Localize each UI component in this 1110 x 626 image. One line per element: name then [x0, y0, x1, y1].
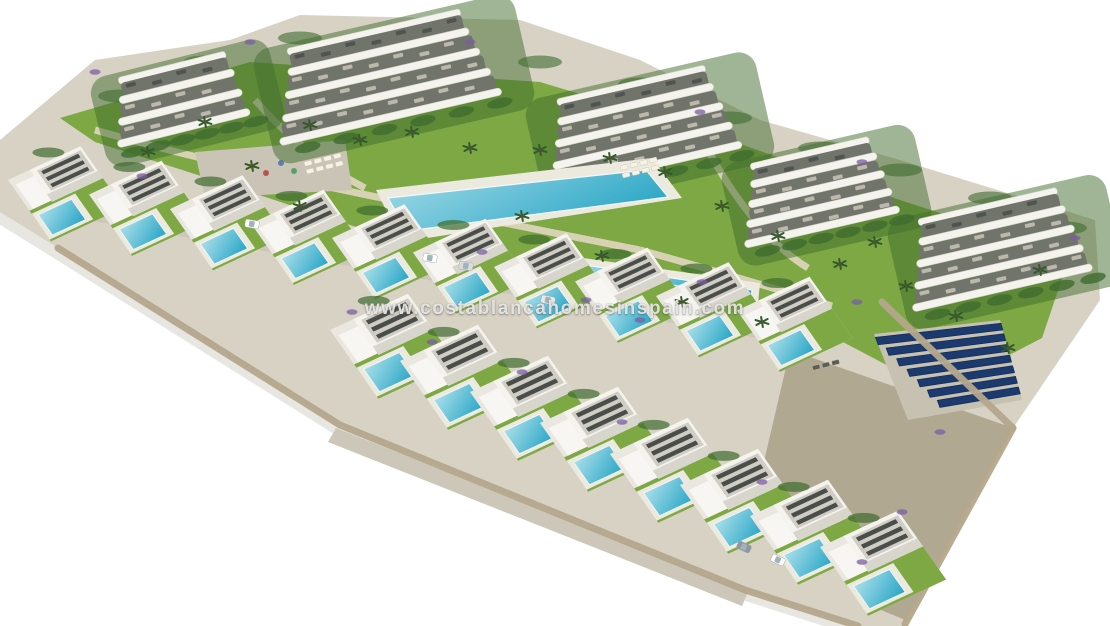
- palm-trunk: [410, 130, 413, 133]
- bougainvillea-patch: [697, 279, 708, 285]
- villa-hedge: [638, 420, 670, 430]
- bougainvillea-patch: [757, 479, 768, 485]
- palm-trunk: [873, 240, 876, 243]
- palm-trunk: [600, 254, 603, 257]
- bougainvillea-patch: [617, 419, 628, 425]
- bougainvillea-patch: [477, 249, 488, 255]
- palm-trunk: [720, 204, 723, 207]
- bougainvillea-patch: [137, 173, 148, 179]
- palm-trunk: [680, 300, 683, 303]
- palm-trunk: [1006, 346, 1009, 349]
- villa-hedge: [194, 177, 226, 187]
- aerial-render: www.costablancahomesinspain.com: [0, 0, 1110, 626]
- palm-trunk: [520, 214, 523, 217]
- palm-trunk: [663, 170, 666, 173]
- palm-trunk: [308, 123, 311, 126]
- bougainvillea-patch: [90, 69, 101, 75]
- villa-hedge: [680, 264, 712, 274]
- villa-hedge: [778, 482, 810, 492]
- villa-hedge: [356, 206, 388, 216]
- bougainvillea-patch: [852, 299, 863, 305]
- villa-hedge: [113, 162, 145, 172]
- bougainvillea-patch: [245, 39, 256, 45]
- palm-trunk: [954, 314, 957, 317]
- palm-trunk: [776, 234, 779, 237]
- bougainvillea-patch: [935, 429, 946, 435]
- playground-equipment: [263, 170, 269, 176]
- villa-hedge: [761, 278, 793, 288]
- villa-hedge: [498, 358, 530, 368]
- render-scene: [0, 0, 1110, 626]
- bougainvillea-patch: [347, 309, 358, 315]
- bougainvillea-patch: [517, 369, 528, 375]
- palm-trunk: [203, 120, 206, 123]
- villa-hedge: [32, 148, 64, 158]
- bougainvillea-patch: [635, 317, 646, 323]
- bougainvillea-patch: [857, 559, 868, 565]
- villa-hedge: [708, 451, 740, 461]
- palm-trunk: [1038, 268, 1041, 271]
- car-windshield: [463, 263, 469, 270]
- villa-hedge: [568, 389, 600, 399]
- palm-trunk: [538, 148, 541, 151]
- bougainvillea-patch: [695, 109, 706, 115]
- villa-hedge: [428, 327, 460, 337]
- bougainvillea-patch: [897, 509, 908, 515]
- villa-hedge: [848, 513, 880, 523]
- car-windshield: [427, 255, 433, 262]
- palm-trunk: [608, 156, 611, 159]
- villa-hedge: [518, 235, 550, 245]
- playground-equipment: [291, 168, 297, 174]
- palm-trunk: [760, 320, 763, 323]
- palm-trunk: [838, 262, 841, 265]
- bougainvillea-patch: [1070, 235, 1081, 241]
- palm-trunk: [298, 204, 301, 207]
- bougainvillea-patch: [857, 159, 868, 165]
- palm-trunk: [904, 284, 907, 287]
- palm-trunk: [358, 138, 361, 141]
- bougainvillea-patch: [427, 339, 438, 345]
- villa-hedge: [358, 296, 390, 306]
- bougainvillea-patch: [465, 39, 476, 45]
- palm-trunk: [468, 146, 471, 149]
- palm-trunk: [250, 164, 253, 167]
- car-windshield: [249, 221, 255, 228]
- palm-trunk: [146, 150, 149, 153]
- villa-hedge: [437, 220, 469, 230]
- bougainvillea-patch: [581, 297, 592, 303]
- villa-hedge: [275, 191, 307, 201]
